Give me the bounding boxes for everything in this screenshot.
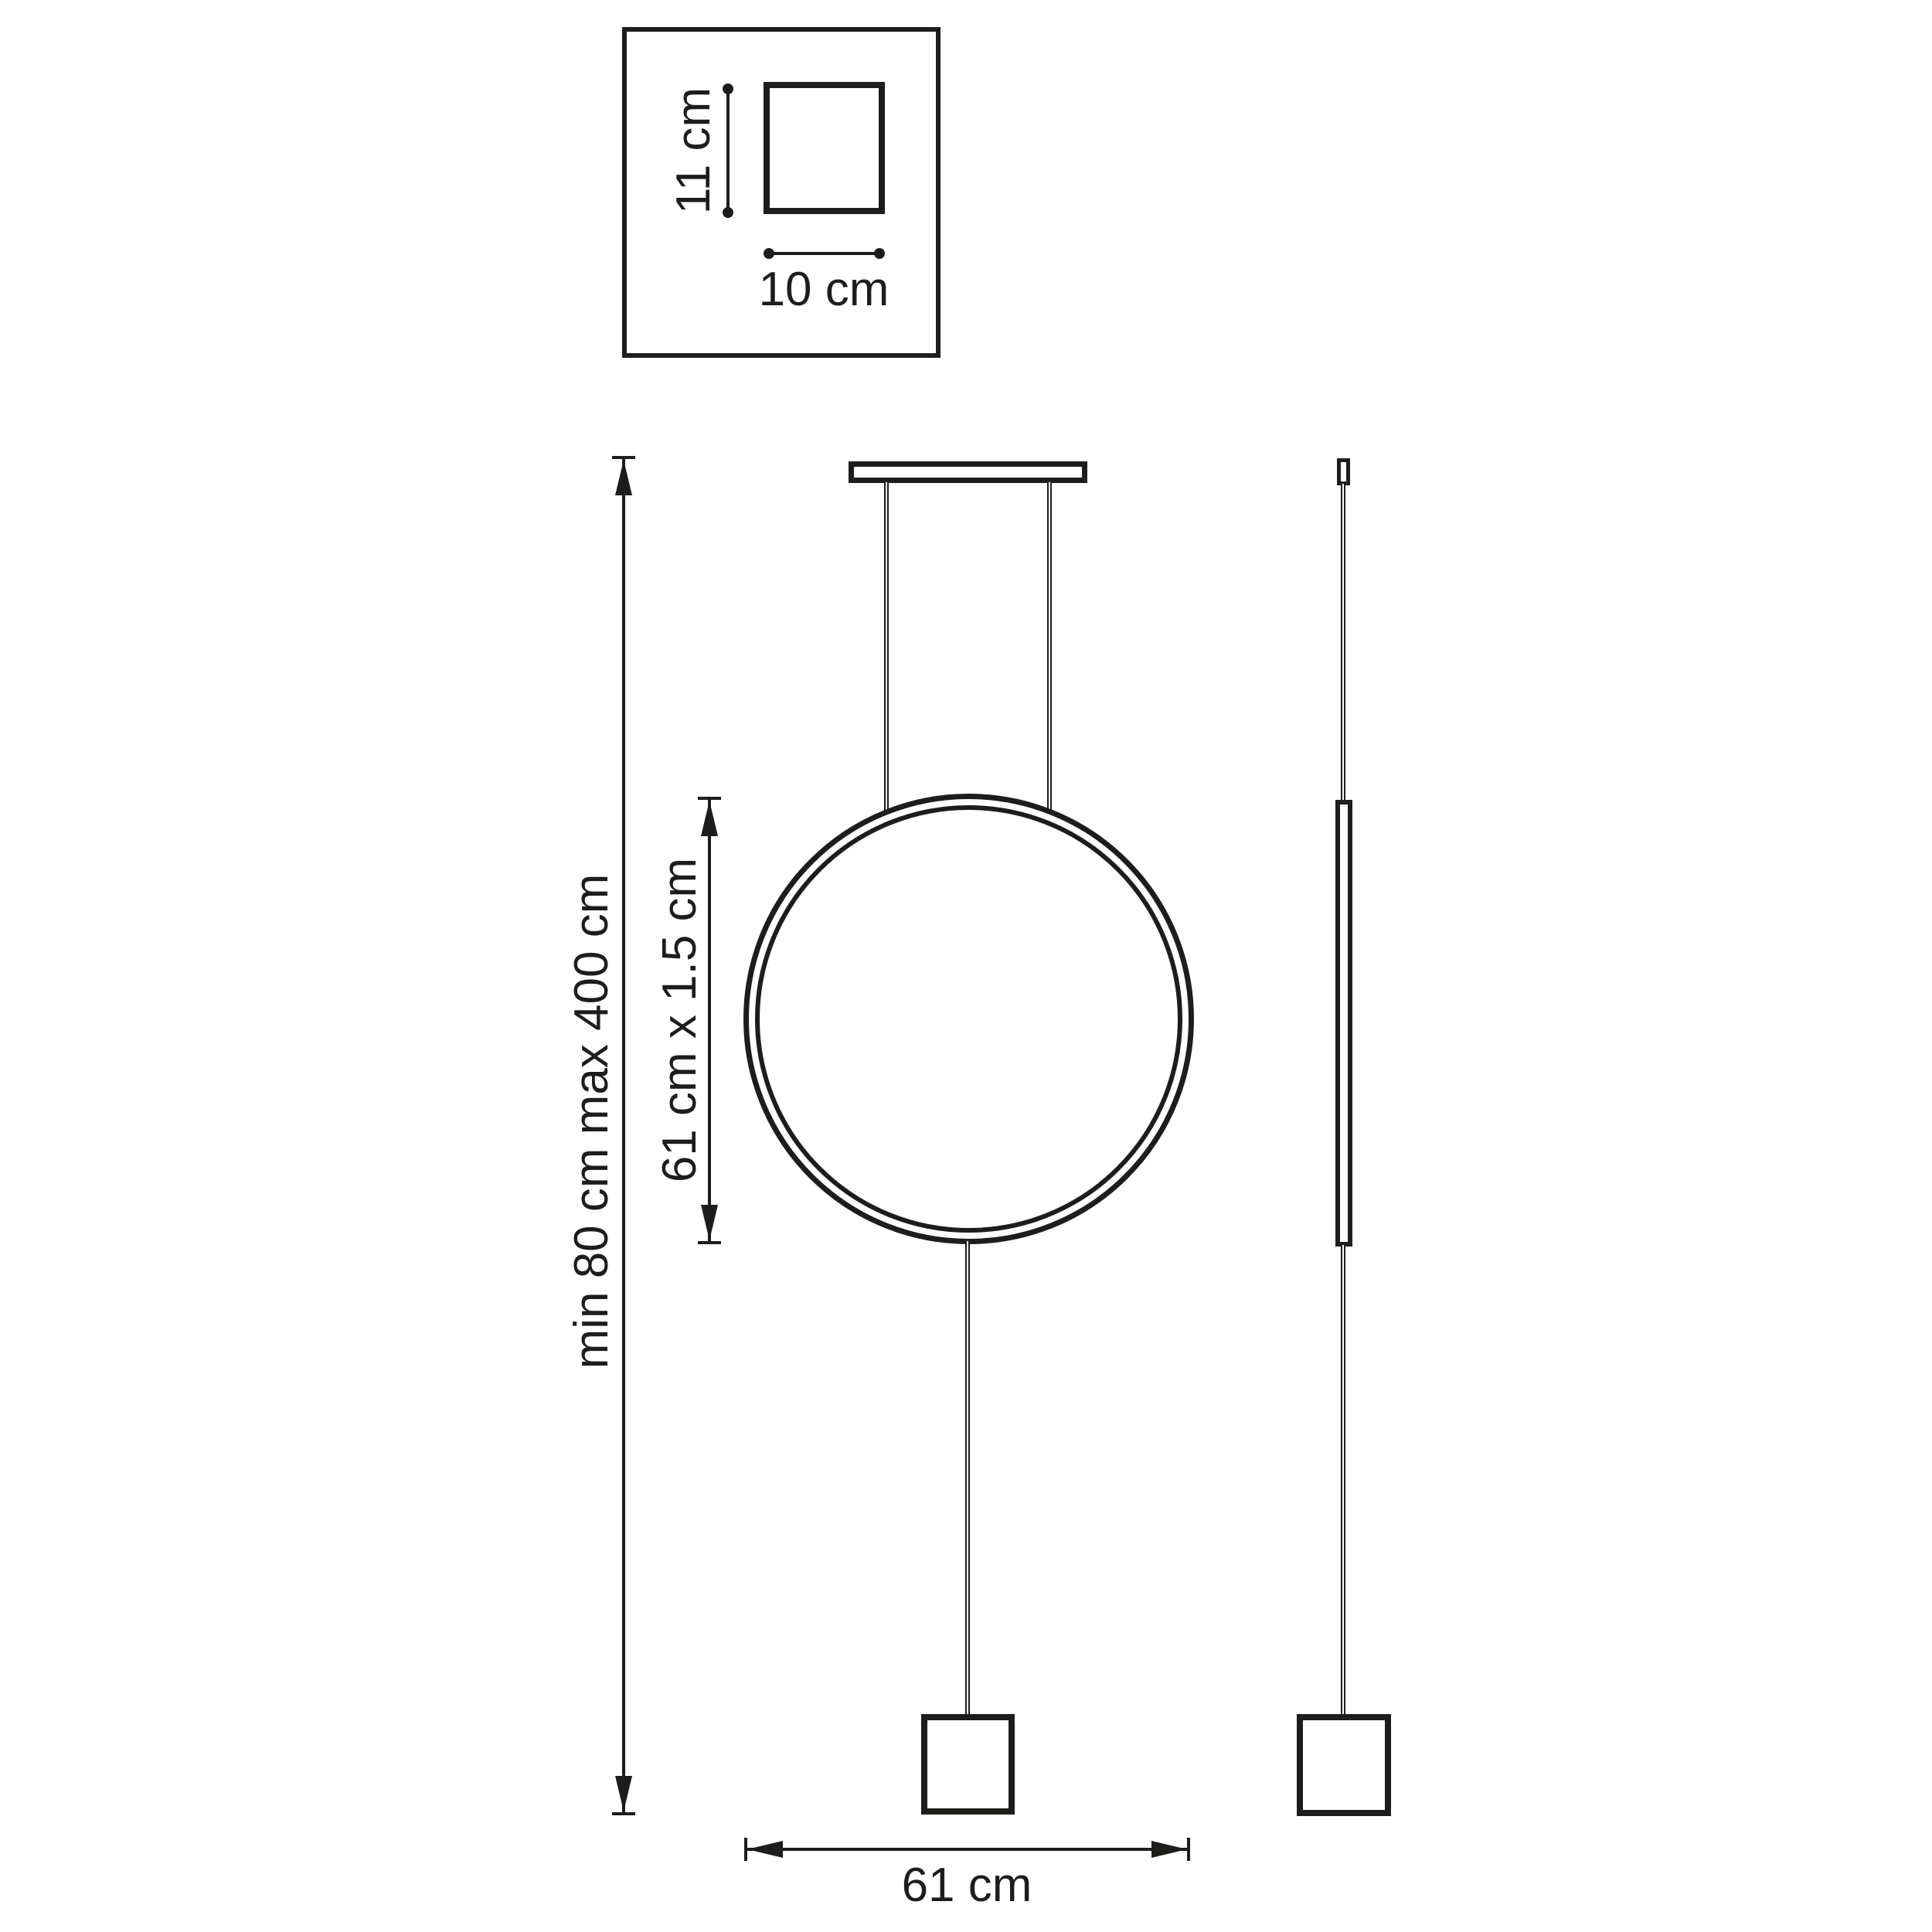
overall-width-label: 61 cm: [902, 1862, 1032, 1910]
ring-dim-cap-bottom: [698, 1241, 721, 1244]
canopy-width-dim-line: [769, 252, 879, 255]
led-ring-inner: [755, 805, 1182, 1233]
ring-size-label: 61 cm x 1.5 cm: [656, 858, 704, 1182]
height-dim-arrow-down: [615, 1776, 632, 1811]
canopy-height-dim-line: [726, 87, 730, 214]
ceiling-plate-side: [1337, 458, 1350, 485]
width-dim-cap-right: [1187, 1838, 1190, 1861]
ring-dim-arrow-down: [701, 1205, 718, 1240]
counterweight-front: [921, 1714, 1015, 1815]
height-dim-line: [622, 459, 625, 1812]
side-wire-upper: [1341, 484, 1345, 801]
height-dim-cap-bottom: [612, 1812, 635, 1815]
ring-dim-line: [708, 800, 711, 1241]
canopy-height-dim-dot-bottom: [723, 207, 733, 218]
lower-wire-front: [965, 1241, 970, 1716]
suspension-wire-left: [884, 482, 889, 811]
ceiling-plate-front: [849, 461, 1087, 483]
suspension-wire-right: [1047, 482, 1052, 811]
counterweight-side: [1297, 1714, 1391, 1816]
canopy-width-label: 10 cm: [759, 266, 889, 314]
canopy-height-label: 11 cm: [670, 87, 718, 214]
side-wire-lower: [1341, 1245, 1345, 1716]
canopy-height-dim-dot-top: [723, 83, 733, 94]
technical-drawing-canvas: 11 cm 10 cm 61 cm x 1.5 cm min 80 cm max…: [0, 0, 1932, 1932]
ring-side-profile: [1335, 800, 1352, 1247]
canopy-outline: [764, 82, 885, 214]
width-dim-line: [747, 1848, 1187, 1851]
canopy-width-dim-dot-left: [764, 248, 774, 259]
suspension-height-label: min 80 cm max 400 cm: [568, 874, 616, 1369]
width-dim-arrow-right: [1151, 1841, 1187, 1858]
canopy-width-dim-dot-right: [874, 248, 885, 259]
